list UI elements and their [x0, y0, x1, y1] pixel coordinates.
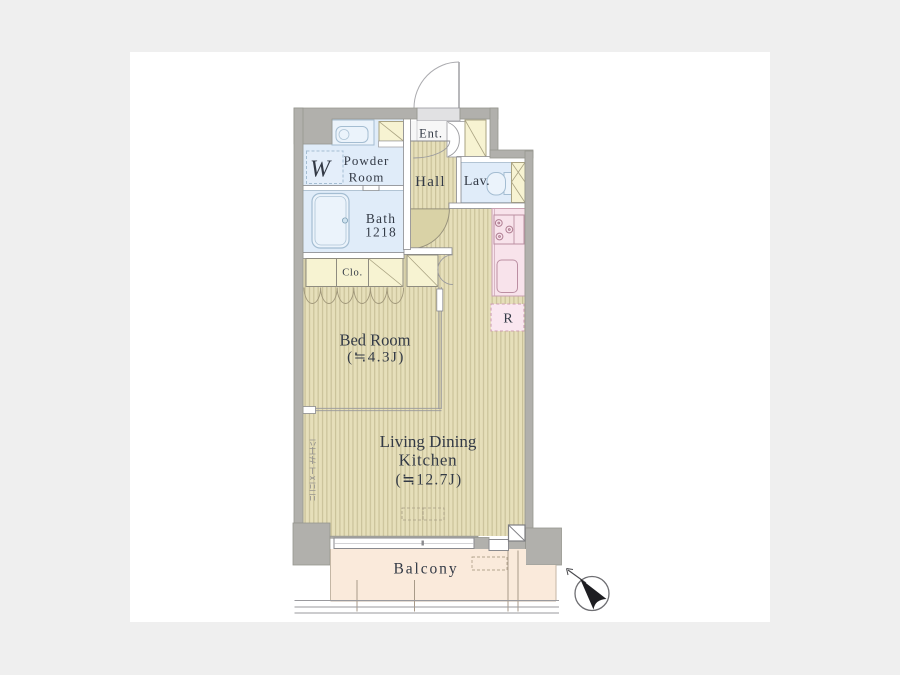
svg-text:Room: Room — [349, 170, 385, 185]
svg-text:1218: 1218 — [365, 225, 397, 240]
svg-text:Clo.: Clo. — [342, 268, 363, 279]
svg-text:R: R — [503, 312, 513, 327]
svg-text:Bed Room: Bed Room — [339, 331, 410, 350]
svg-text:Kitchen: Kitchen — [399, 451, 458, 470]
svg-text:Balcony: Balcony — [394, 561, 459, 578]
svg-text:(≒4.3J): (≒4.3J) — [347, 350, 405, 366]
svg-text:W: W — [310, 157, 332, 183]
svg-text:Ent.: Ent. — [419, 127, 443, 141]
svg-text:Living Dining: Living Dining — [380, 432, 477, 451]
svg-text:Lav.: Lav. — [464, 174, 490, 189]
svg-text:(≒12.7J): (≒12.7J) — [396, 472, 463, 489]
svg-text:Hall: Hall — [415, 174, 446, 190]
svg-text:Powder: Powder — [344, 153, 390, 168]
